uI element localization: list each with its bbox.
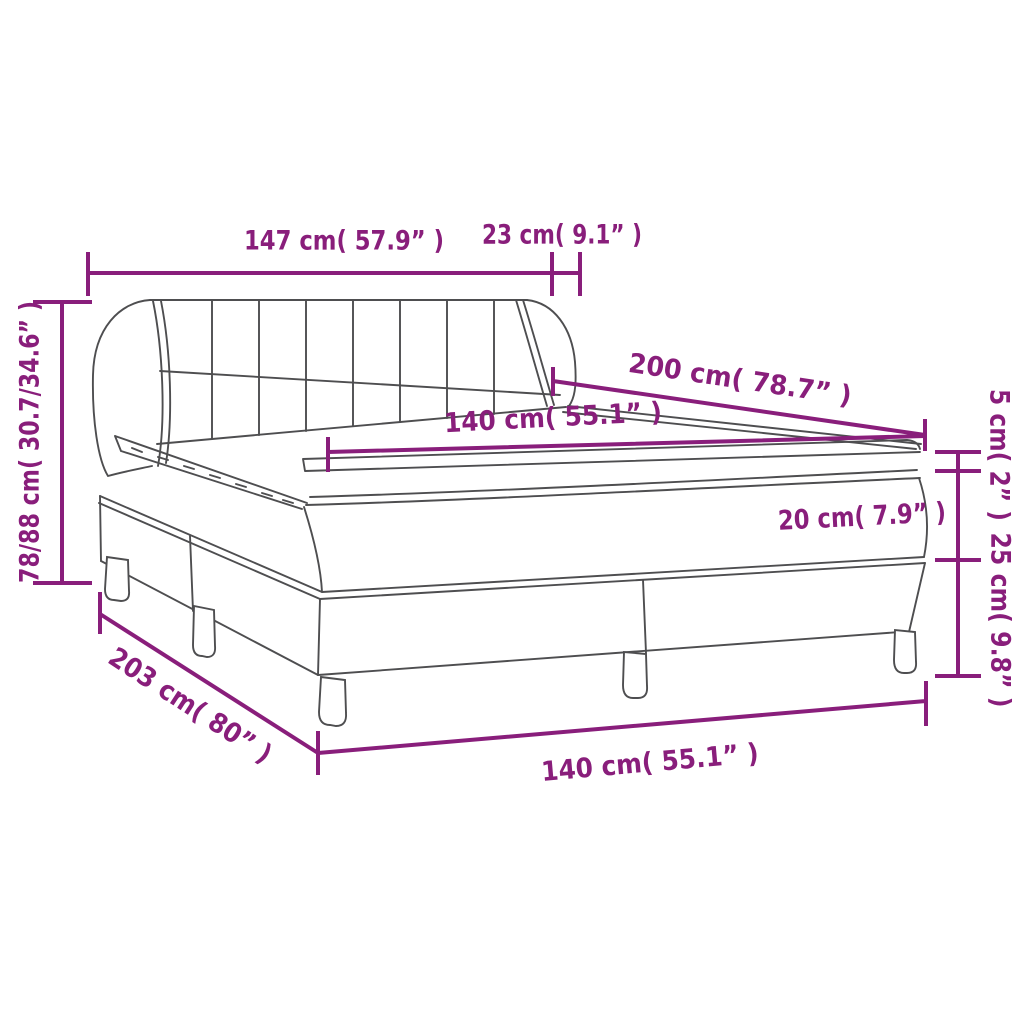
leg (105, 557, 129, 601)
headboard-depth-label: 23 cm( 9.1” ) (482, 220, 642, 251)
mattress-strip-stitches (132, 448, 293, 503)
total-length-label: 203 cm( 80” ) (103, 642, 278, 770)
leg (894, 630, 916, 673)
dim-headboard-width-line (88, 252, 580, 296)
mattress-width-label: 140 cm( 55.1” ) (443, 397, 662, 439)
bed-dimension-svg: 147 cm( 57.9” ) 23 cm( 9.1” ) 78/88 cm( … (0, 0, 1024, 1024)
base-width-label: 140 cm( 55.1” ) (540, 738, 760, 788)
dim-right-stack-line (935, 452, 981, 676)
base-front-bottom-edge (318, 632, 900, 675)
base-leg-height-label: 25 cm( 9.8” ) (985, 533, 1016, 708)
dimension-labels: 147 cm( 57.9” ) 23 cm( 9.1” ) 78/88 cm( … (15, 220, 1016, 788)
headboard-width-label: 147 cm( 57.9” ) (244, 226, 444, 257)
headboard (93, 300, 576, 476)
base-right-edge (909, 563, 925, 632)
headboard-right-wing-inner (516, 300, 554, 406)
mattress-left-side-strip (115, 436, 307, 509)
topper-height-label: 5 cm( 2” ) (984, 389, 1015, 521)
base-left-divider (190, 536, 193, 611)
base-corner-edge (318, 599, 320, 675)
legs (105, 557, 916, 726)
leg (623, 652, 647, 698)
mattress-foot-crease (306, 470, 920, 505)
mattress-foot-left-edge (304, 507, 322, 592)
leg (319, 677, 346, 726)
headboard-left-wing-inner (153, 301, 170, 466)
bed-height-label: 78/88 cm( 30.7/34.6” ) (15, 301, 46, 583)
mattress-height-label: 20 cm( 7.9” ) (777, 497, 946, 537)
leg (193, 606, 215, 657)
dim-base-width-line (318, 681, 926, 753)
dimension-diagram: 147 cm( 57.9” ) 23 cm( 9.1” ) 78/88 cm( … (0, 0, 1024, 1024)
headboard-mid-seam (160, 371, 560, 395)
headboard-left-wing (93, 300, 152, 476)
base-left-edge (100, 496, 101, 561)
base-front-divider (643, 580, 646, 653)
